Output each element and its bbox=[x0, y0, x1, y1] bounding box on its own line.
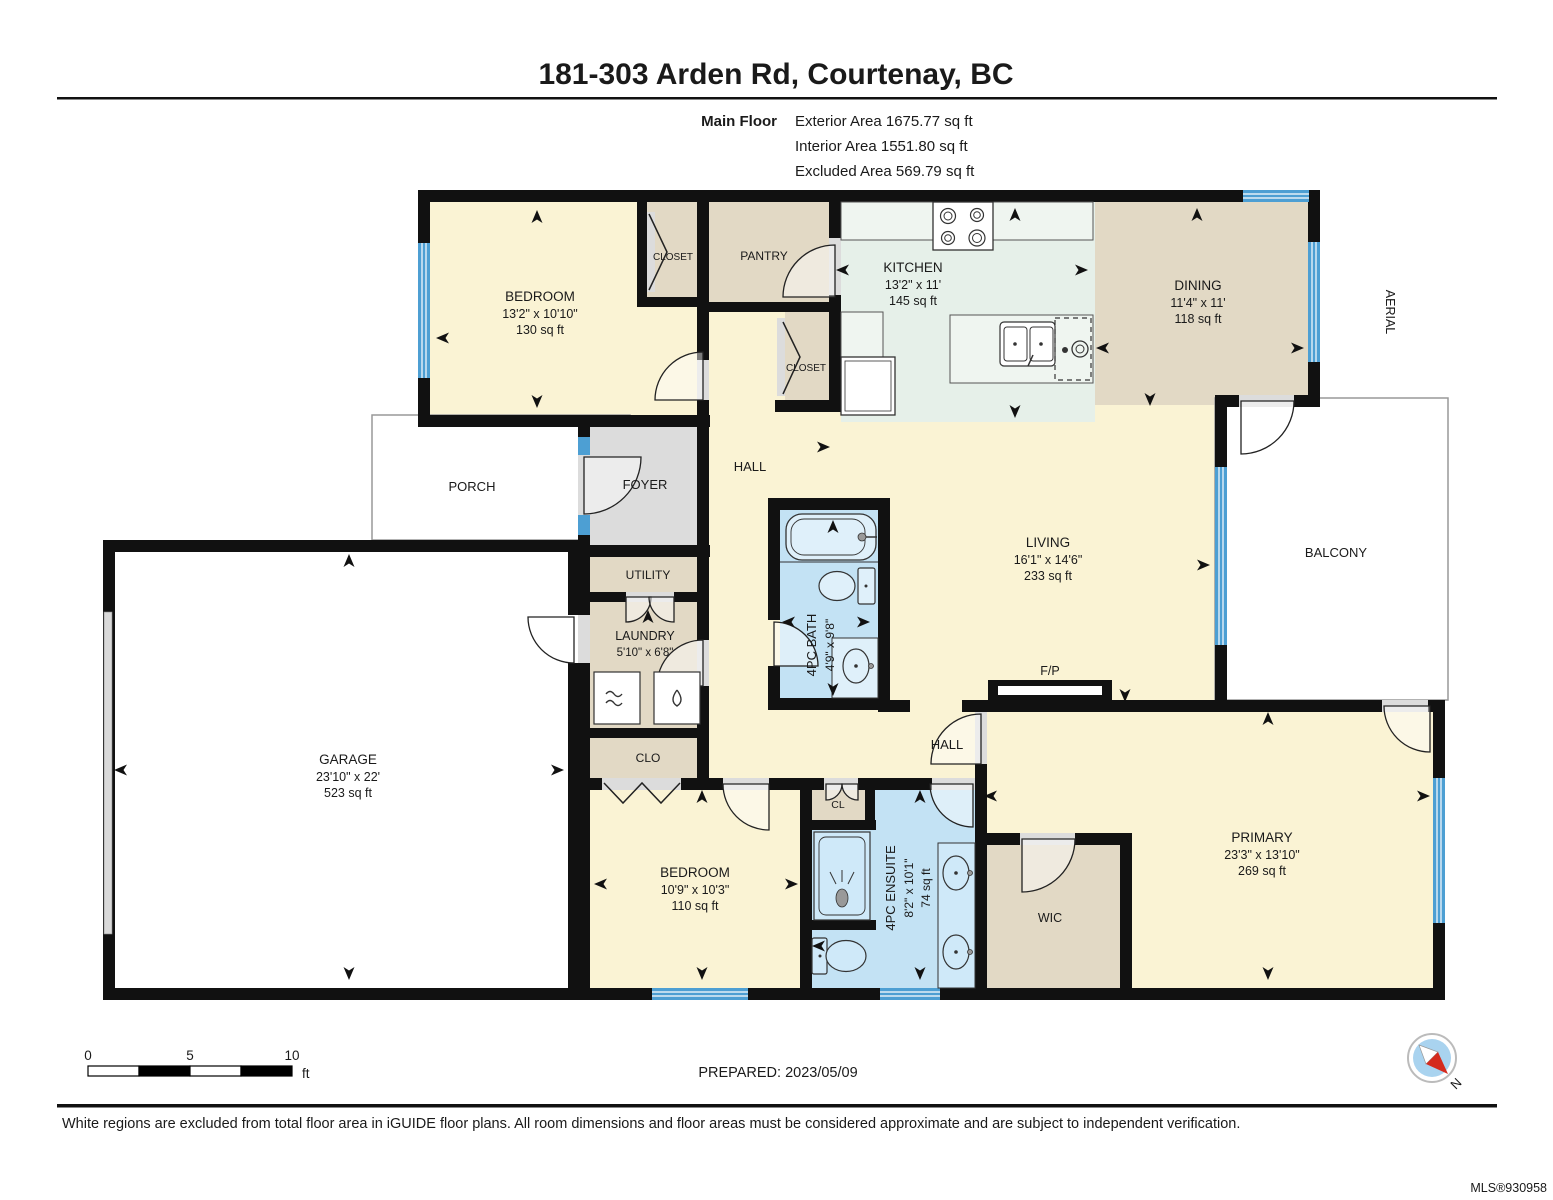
kitchen-label: KITCHEN bbox=[883, 260, 942, 275]
porch-label: PORCH bbox=[449, 479, 496, 494]
living-area: 233 sq ft bbox=[1024, 569, 1072, 583]
header: 181-303 Arden Rd, Courtenay, BC Main Flo… bbox=[57, 58, 1497, 180]
dining-label: DINING bbox=[1174, 278, 1221, 293]
bedroom1-area: 130 sq ft bbox=[516, 323, 564, 337]
window-dining-right bbox=[1308, 242, 1320, 362]
compass-icon: N bbox=[1408, 1034, 1465, 1092]
window-living-right bbox=[1215, 467, 1227, 645]
hall-lower-label: HALL bbox=[931, 737, 964, 752]
stove-icon bbox=[933, 202, 993, 250]
exterior-area: Exterior Area 1675.77 sq ft bbox=[795, 113, 973, 130]
kitchen-area: 145 sq ft bbox=[889, 294, 937, 308]
bath-toilet-icon bbox=[819, 568, 875, 604]
garage-label: GARAGE bbox=[319, 752, 377, 767]
bath-label: 4PC BATH bbox=[804, 614, 819, 677]
garage-dims: 23'10" x 22' bbox=[316, 770, 380, 784]
dryer-icon bbox=[654, 672, 700, 724]
bedroom1-label: BEDROOM bbox=[505, 289, 575, 304]
excluded-area: Excluded Area 569.79 sq ft bbox=[795, 163, 975, 180]
kitchen-counter-left bbox=[841, 312, 883, 357]
mls-number: MLS®930958 bbox=[1470, 1181, 1547, 1195]
balcony-label: BALCONY bbox=[1305, 545, 1367, 560]
foyer-label: FOYER bbox=[623, 477, 668, 492]
primary-label: PRIMARY bbox=[1231, 830, 1292, 845]
living-dims: 16'1" x 14'6" bbox=[1014, 553, 1083, 567]
bath-vanity-icon bbox=[832, 638, 878, 698]
ensuite-area: 74 sq ft bbox=[919, 868, 933, 908]
aerial-label: AERIAL bbox=[1383, 290, 1397, 335]
disclaimer-text: White regions are excluded from total fl… bbox=[62, 1116, 1240, 1132]
kitchen-sink-icon bbox=[1000, 322, 1055, 366]
kitchen-dims: 13'2" x 11' bbox=[885, 278, 941, 292]
floor-plan-page: 181-303 Arden Rd, Courtenay, BC Main Flo… bbox=[0, 0, 1553, 1200]
primary-dims: 23'3" x 13'10" bbox=[1224, 848, 1300, 862]
scale-tick-5: 5 bbox=[186, 1048, 194, 1063]
clo-label: CLO bbox=[636, 751, 661, 765]
shower-icon bbox=[814, 832, 870, 920]
compass-north-label: N bbox=[1447, 1075, 1464, 1092]
fireplace-label: F/P bbox=[1040, 664, 1059, 678]
room-closet-mid bbox=[785, 312, 829, 400]
closet-top-label: CLOSET bbox=[653, 252, 693, 263]
floor-plan-canvas: 181-303 Arden Rd, Courtenay, BC Main Flo… bbox=[0, 0, 1553, 1200]
bedroom2-dims: 10'9" x 10'3" bbox=[661, 883, 730, 897]
garage-door bbox=[104, 612, 112, 934]
window-bedroom1-left bbox=[418, 243, 430, 378]
dining-area: 118 sq ft bbox=[1174, 312, 1222, 326]
bedroom1-dims: 13'2" x 10'10" bbox=[502, 307, 578, 321]
floor-label: Main Floor bbox=[701, 113, 777, 130]
fridge-icon bbox=[841, 357, 895, 415]
living-label: LIVING bbox=[1026, 535, 1070, 550]
garage-area: 523 sq ft bbox=[324, 786, 372, 800]
scale-bar: 0 5 10 ft bbox=[84, 1048, 310, 1081]
window-dining-top bbox=[1243, 190, 1309, 202]
scale-unit: ft bbox=[302, 1066, 310, 1081]
cl-label: CL bbox=[831, 799, 845, 811]
bath-dims: 4'9" x 9'8" bbox=[823, 619, 837, 671]
washer-icon bbox=[594, 672, 640, 724]
ensuite-dims: 8'2" x 10'1" bbox=[902, 858, 916, 917]
scale-tick-0: 0 bbox=[84, 1048, 92, 1063]
wic-label: WIC bbox=[1038, 911, 1062, 925]
ensuite-label: 4PC ENSUITE bbox=[883, 845, 898, 931]
window-bedroom2-bottom bbox=[652, 988, 748, 1000]
page-title: 181-303 Arden Rd, Courtenay, BC bbox=[538, 58, 1013, 91]
prepared-date: PREPARED: 2023/05/09 bbox=[698, 1065, 857, 1081]
interior-area: Interior Area 1551.80 sq ft bbox=[795, 138, 968, 155]
bedroom2-label: BEDROOM bbox=[660, 865, 730, 880]
window-ensuite-bottom bbox=[880, 988, 940, 1000]
footer-divider bbox=[57, 1104, 1497, 1108]
bedroom2-area: 110 sq ft bbox=[671, 899, 719, 913]
laundry-dims: 5'10" x 6'8" bbox=[617, 647, 674, 659]
laundry-label: LAUNDRY bbox=[615, 629, 675, 643]
window-primary-right bbox=[1433, 778, 1445, 923]
fireplace-inner bbox=[998, 686, 1102, 695]
bathtub-icon bbox=[786, 514, 877, 560]
hall-upper-label: HALL bbox=[734, 459, 767, 474]
scale-tick-10: 10 bbox=[284, 1048, 299, 1063]
closet-mid-label: CLOSET bbox=[786, 363, 826, 374]
window-foyer-1 bbox=[578, 437, 590, 455]
header-divider bbox=[57, 97, 1497, 100]
ensuite-vanity-icon bbox=[938, 843, 975, 988]
window-foyer-2 bbox=[578, 515, 590, 535]
primary-area: 269 sq ft bbox=[1238, 864, 1286, 878]
dining-dims: 11'4" x 11' bbox=[1170, 296, 1225, 310]
utility-label: UTILITY bbox=[626, 568, 671, 582]
pantry-label: PANTRY bbox=[740, 249, 788, 263]
